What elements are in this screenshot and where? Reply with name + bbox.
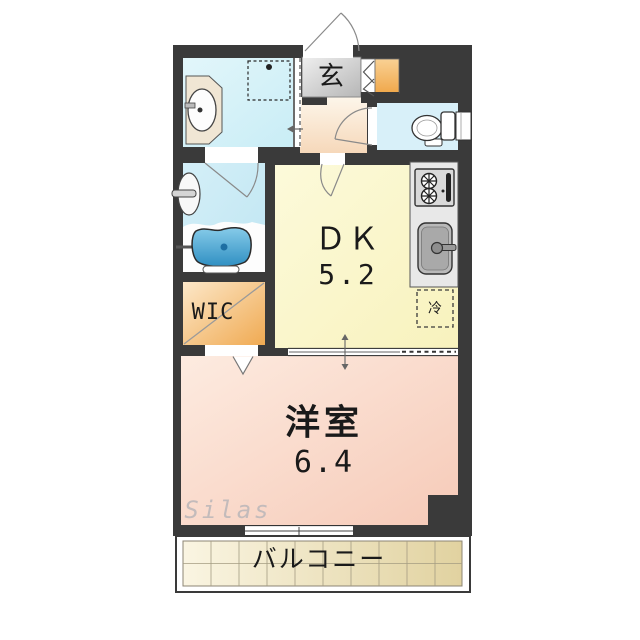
entrance-door-opening bbox=[303, 45, 353, 58]
toilet-door-opening bbox=[368, 107, 377, 145]
wic-label: WIC bbox=[192, 302, 235, 324]
hall-dk-door-opening bbox=[320, 153, 345, 165]
dk-label: ＤＫ bbox=[315, 225, 381, 256]
room-hall bbox=[300, 97, 367, 153]
kitchen-sink-icon bbox=[418, 223, 456, 274]
washbasin-icon bbox=[185, 76, 222, 144]
western-room-area-label: 6.4 bbox=[294, 448, 354, 478]
western-room-label: 洋室 bbox=[285, 407, 363, 442]
entrance-label: 玄 bbox=[318, 64, 344, 90]
bathroom-door-opening bbox=[205, 147, 258, 163]
dk-area-label: 5.2 bbox=[318, 261, 378, 289]
floor-plan: 玄 ＤＫ 5.2 冷 WIC 洋室 6.4 バルコニー Silas bbox=[0, 0, 640, 640]
stove-icon bbox=[415, 169, 454, 206]
toilet-window bbox=[456, 112, 471, 140]
wall-stub-right bbox=[361, 92, 399, 103]
watermark: Silas bbox=[184, 498, 271, 522]
wall-stub-left bbox=[302, 97, 327, 105]
balcony-label: バルコニー bbox=[252, 547, 387, 572]
shoe-cabinet bbox=[375, 59, 399, 93]
wic-door-opening bbox=[205, 345, 258, 356]
refrigerator-label: 冷 bbox=[428, 302, 442, 316]
